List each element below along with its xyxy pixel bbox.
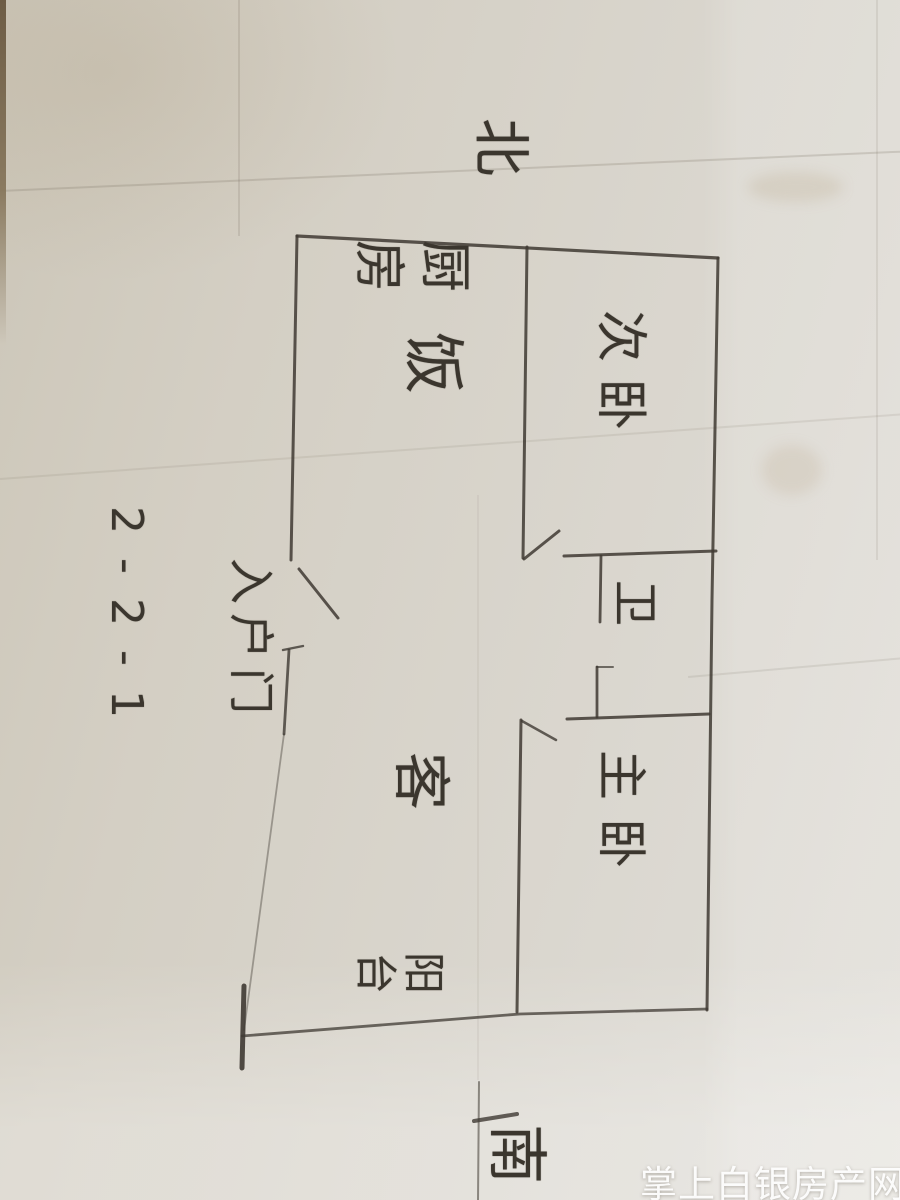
wall-kitchen-divider	[523, 247, 527, 558]
bathroom-label: 卫	[612, 580, 658, 626]
south-tick-mark	[474, 1114, 517, 1121]
wall-bathroom-bottom	[567, 714, 709, 719]
dining-label: 饭	[402, 332, 464, 394]
secondary-bedroom-label: 次卧	[594, 310, 646, 430]
wall-bathroom-top	[564, 551, 716, 556]
compass-south-label: 南	[486, 1124, 546, 1184]
wall-bottom	[242, 1009, 707, 1036]
wall-right	[707, 258, 718, 1010]
plan-code-label: 2-2-1	[112, 498, 140, 726]
floorplan-photo: 北 厨房 饭 次卧 卫 入户门 客 主卧 阳台 南 2-2-1 掌上白银房产网	[0, 0, 900, 1200]
entry-door-label: 入户门	[228, 558, 274, 714]
balcony-label: 阳台	[354, 952, 444, 994]
wall-bathroom-left-upper	[600, 556, 601, 622]
watermark: 掌上白银房产网	[640, 1154, 900, 1200]
wall-master-left	[517, 720, 521, 1012]
master-bedroom-label: 主卧	[596, 750, 646, 868]
living-room-label: 客	[392, 752, 450, 810]
entry-door-jamb	[283, 646, 303, 650]
compass-north-label: 北	[472, 118, 530, 176]
secondary-bedroom-door-swing	[524, 531, 559, 559]
master-bedroom-door-swing	[522, 721, 556, 740]
south-vertical-mark	[478, 1082, 479, 1200]
wall-left-bottom-heavy	[242, 986, 244, 1068]
wall-left-lower	[244, 734, 284, 1030]
entry-door-swing	[299, 569, 338, 618]
kitchen-label: 厨房	[352, 240, 470, 292]
wall-left-mid	[284, 650, 289, 734]
wall-left-upper	[291, 236, 297, 560]
